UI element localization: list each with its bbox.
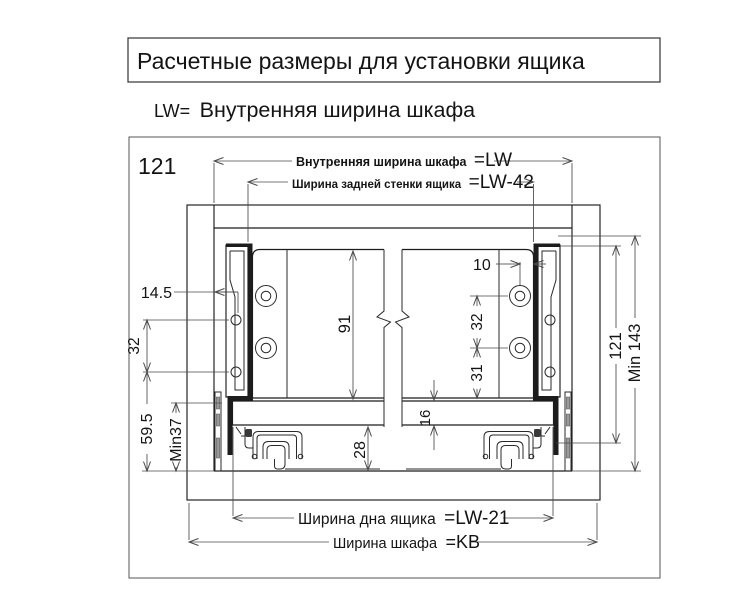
- page-title: Расчетные размеры для установки ящика: [137, 48, 585, 74]
- title-box: Расчетные размеры для установки ящика: [128, 38, 660, 82]
- dimension-32-right: 32: [469, 296, 508, 348]
- dim-32-right-text: 32: [469, 313, 486, 330]
- dim-16-text: 16: [417, 410, 434, 427]
- dim-32-left-text: 32: [126, 337, 143, 354]
- back-panel-outline: [253, 250, 385, 399]
- dimension-back-panel-width: Ширина задней стенки ящика =LW-42: [248, 172, 534, 242]
- drawer-half-right: [396, 244, 572, 472]
- dim-inner-width-text: Внутренняя ширина шкафа =LW: [296, 150, 512, 171]
- dimension-121-side: 121: [556, 246, 625, 443]
- dimension-31: 31: [469, 348, 486, 398]
- subtitle-text: Внутренняя ширина шкафа: [200, 98, 476, 122]
- dim-14-5-text: 14.5: [141, 285, 172, 302]
- dim-31-text: 31: [469, 364, 486, 381]
- dim-91-text: 91: [336, 315, 354, 333]
- dim-min143-text: Min 143: [626, 324, 644, 383]
- dimension-14-5: 14.5: [141, 285, 238, 313]
- break-line: [377, 250, 391, 428]
- side-outer: [226, 245, 248, 397]
- dim-59-5-text: 59.5: [139, 413, 156, 444]
- drawer-bottom: [233, 401, 385, 425]
- dim-28-text: 28: [352, 441, 369, 459]
- dim-back-panel-text: Ширина задней стенки ящика =LW-42: [292, 172, 534, 193]
- drawer-half-left: [215, 244, 391, 472]
- corner-label: 121: [138, 153, 176, 179]
- side-hole-lower: [231, 367, 241, 377]
- screenshot: Расчетные размеры для установки ящика LW…: [0, 0, 750, 600]
- subtitle-abbr: LW=: [154, 101, 190, 121]
- dim-121-text: 121: [607, 332, 625, 360]
- dim-bottom-width-text: Ширина дна ящика =LW-21: [298, 508, 509, 529]
- dimension-bottom-width: Ширина дна ящика =LW-21: [233, 427, 553, 529]
- dimension-28: 28: [352, 427, 369, 470]
- wall-bracket: [215, 392, 221, 471]
- subtitle: LW= Внутренняя ширина шкафа: [154, 98, 475, 122]
- back-panel: [253, 250, 385, 399]
- washer-upper: [256, 286, 277, 307]
- dim-cabinet-width-text: Ширина шкафа =KB: [333, 532, 480, 552]
- side-top-cap: [226, 244, 253, 248]
- dimension-16: 16: [417, 380, 434, 450]
- dim-10-text: 10: [473, 257, 491, 274]
- side-hole-upper: [231, 315, 241, 325]
- dim-min37-text: Min37: [168, 418, 185, 462]
- dimension-91: 91: [336, 251, 354, 399]
- drawer-side: [226, 244, 253, 456]
- technical-drawing: Расчетные размеры для установки ящика LW…: [0, 0, 750, 600]
- washer-lower: [256, 338, 277, 359]
- side-edge: [248, 244, 253, 398]
